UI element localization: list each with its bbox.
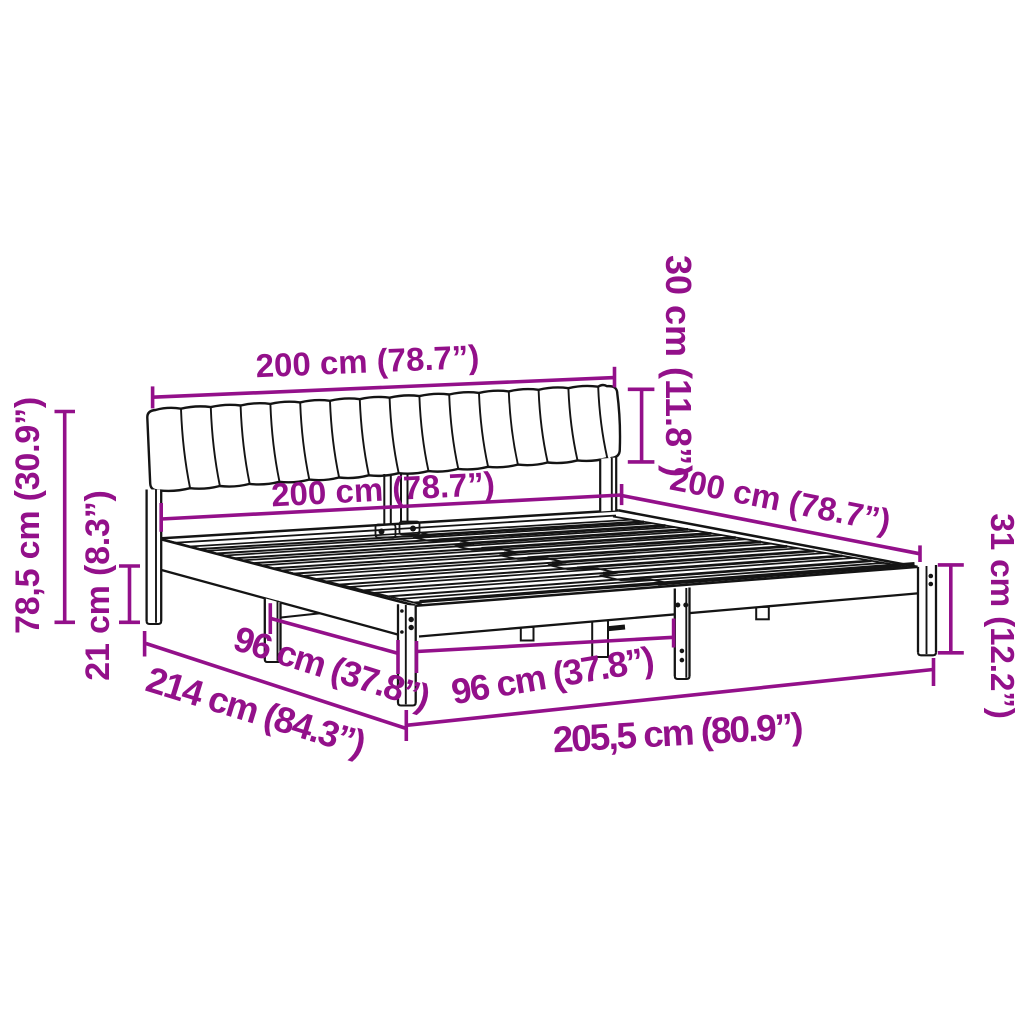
svg-text:31 cm (12.2”): 31 cm (12.2”) xyxy=(983,513,1020,718)
svg-text:21 cm (8.3”): 21 cm (8.3”) xyxy=(79,490,117,680)
svg-text:78,5 cm (30.9”): 78,5 cm (30.9”) xyxy=(9,397,47,634)
svg-text:30 cm (11.8”): 30 cm (11.8”) xyxy=(658,255,699,477)
